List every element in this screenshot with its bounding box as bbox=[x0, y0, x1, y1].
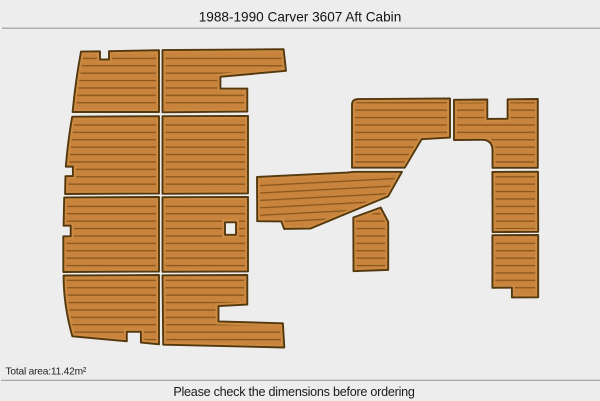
svg-text:1988-1990 Carver 3607 Aft Cabi: 1988-1990 Carver 3607 Aft Cabin bbox=[199, 10, 402, 25]
svg-text:Please check the dimensions be: Please check the dimensions before order… bbox=[173, 385, 415, 399]
svg-text:Total area:11.42m²: Total area:11.42m² bbox=[6, 367, 87, 378]
